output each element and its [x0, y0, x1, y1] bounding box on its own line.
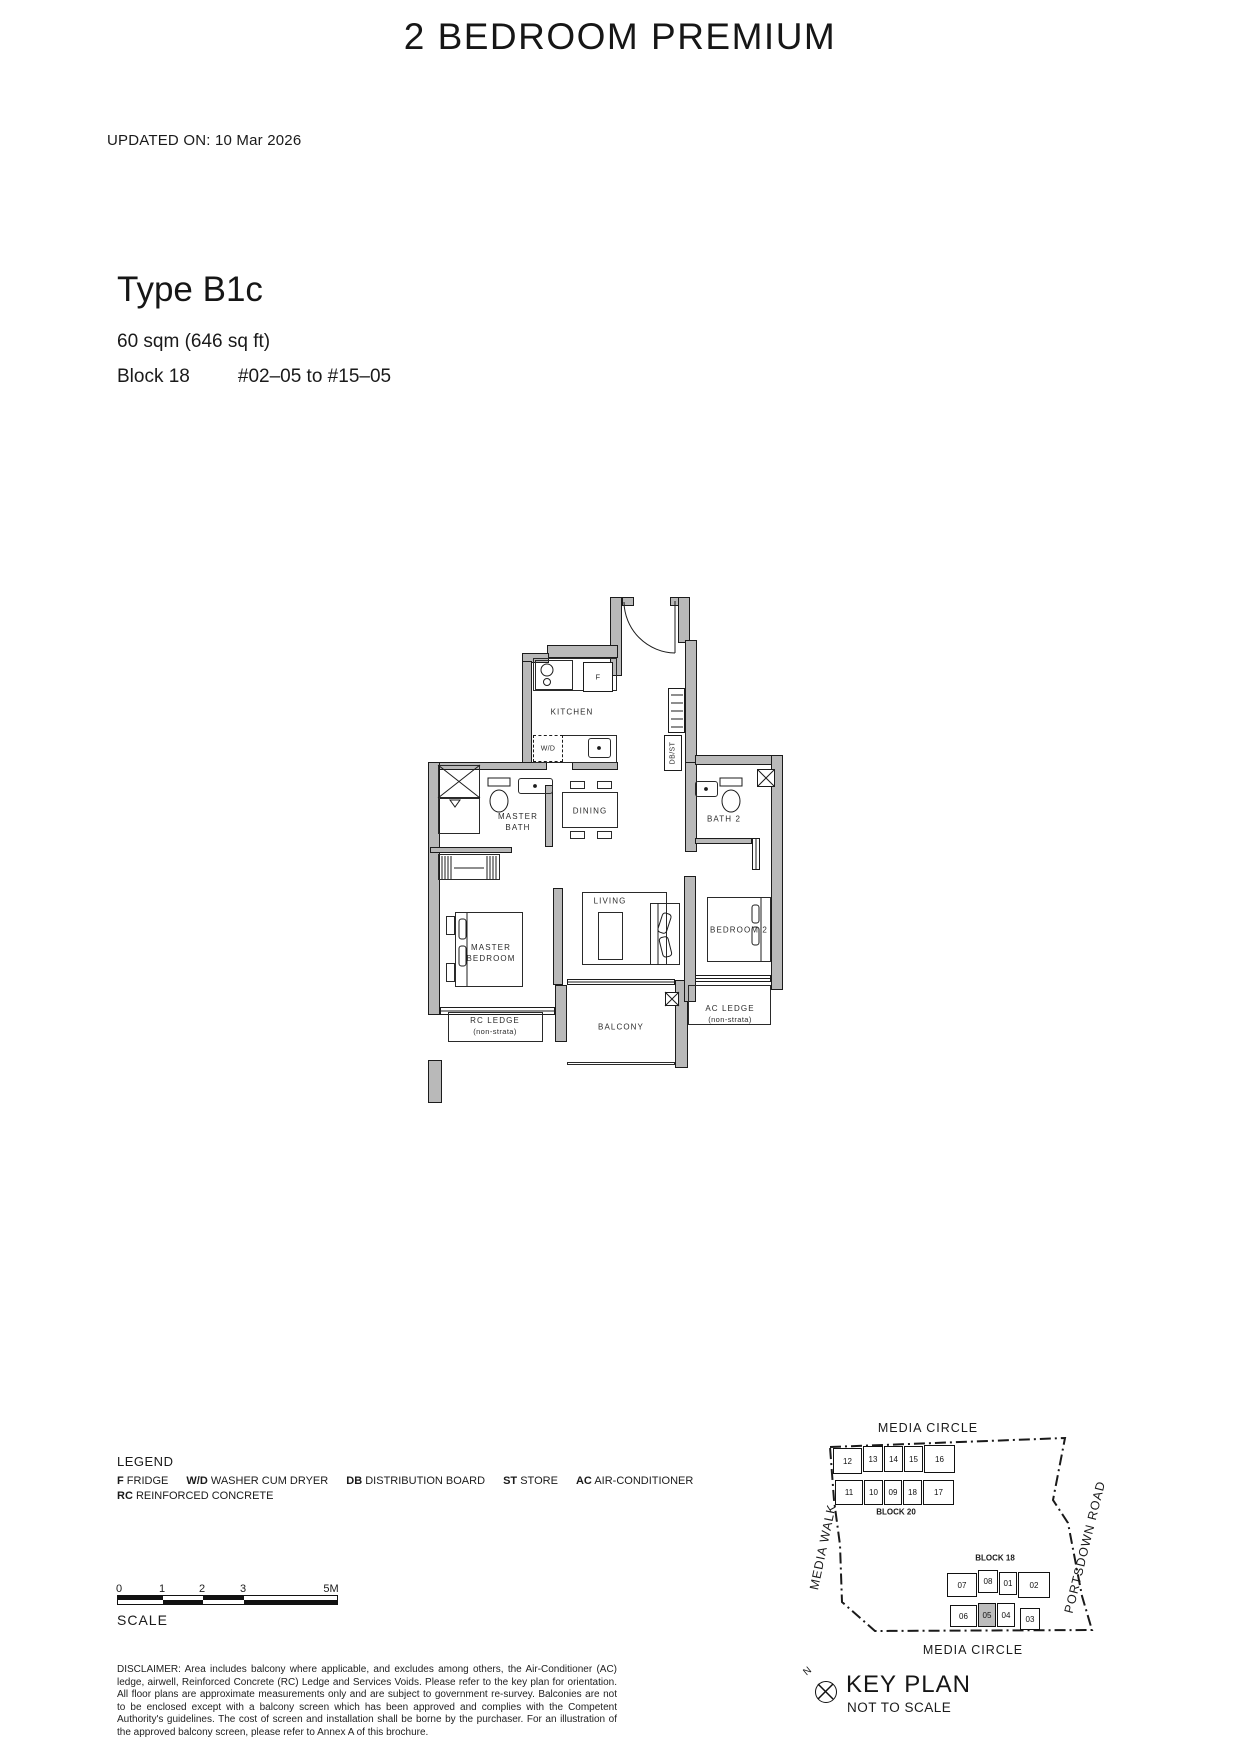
- ac-x: [665, 992, 679, 1006]
- shaft-louvres: [671, 695, 683, 727]
- scale-tick: 2: [199, 1583, 205, 1595]
- unit-box: 10: [864, 1480, 883, 1505]
- sink-tap: [598, 747, 601, 750]
- legend-item: ST STORE: [503, 1475, 558, 1487]
- label-master-bedroom: MASTER BEDROOM: [466, 942, 515, 964]
- unit-range: #02–05 to #15–05: [238, 366, 391, 387]
- label-washer: W/D: [541, 746, 556, 753]
- road-media-circle-top: MEDIA CIRCLE: [878, 1421, 978, 1435]
- unit-area: 60 sqm (646 sq ft): [117, 331, 270, 353]
- label-balcony: BALCONY: [598, 1022, 644, 1033]
- label-kitchen: KITCHEN: [551, 707, 594, 718]
- updated-on: UPDATED ON: 10 Mar 2026: [107, 132, 301, 149]
- unit-box: 12: [833, 1448, 862, 1474]
- shower-x: [438, 765, 480, 798]
- label-dbst: DB/ST: [670, 742, 677, 765]
- label-living: LIVING: [594, 896, 627, 907]
- block18-label: BLOCK 18: [975, 1554, 1015, 1563]
- sofa-cushion: [657, 912, 672, 934]
- unit-box: 17: [923, 1480, 954, 1505]
- unit-box: 01: [999, 1572, 1017, 1595]
- unit-box: 04: [997, 1603, 1015, 1627]
- toilet-bowl: [722, 790, 740, 812]
- floorplan: KITCHEN DINING MASTER BATH BATH 2 LIVING…: [420, 585, 790, 1105]
- legend-heading: LEGEND: [117, 1454, 173, 1469]
- unit-box: 03: [1020, 1608, 1040, 1630]
- hob-burner: [544, 679, 551, 686]
- unit-block: Block 18: [117, 366, 190, 387]
- unit-box: 07: [947, 1573, 977, 1597]
- pillow: [459, 919, 466, 939]
- sink-tap: [705, 788, 708, 791]
- block20-label: BLOCK 20: [876, 1508, 916, 1517]
- keyplan-subtitle: NOT TO SCALE: [847, 1700, 951, 1715]
- unit-type-title: Type B1c: [117, 270, 263, 310]
- unit-box: 08: [978, 1570, 998, 1593]
- scale-tick: 1: [159, 1583, 165, 1595]
- legend-item: F FRIDGE: [117, 1475, 168, 1487]
- unit-box: 18: [903, 1480, 922, 1505]
- legend-row: F FRIDGE W/D WASHER CUM DRYER DB DISTRIB…: [117, 1475, 708, 1487]
- toilet-bowl: [490, 790, 508, 812]
- key-plan: MEDIA CIRCLE MEDIA WALK PORTSDOWN ROAD M…: [790, 1400, 1220, 1740]
- scale-bar: 0 1 2 3 5M: [117, 1583, 338, 1609]
- legend-item: W/D WASHER CUM DRYER: [186, 1475, 328, 1487]
- wardrobe-hatch: [442, 856, 496, 879]
- toilet-tank: [720, 778, 742, 786]
- unit-box: 09: [884, 1480, 902, 1505]
- legend-item: RC REINFORCED CONCRETE: [117, 1490, 273, 1502]
- label-bath2: BATH 2: [707, 814, 741, 825]
- scale-tick: 3: [240, 1583, 246, 1595]
- unit-box: 15: [904, 1446, 923, 1472]
- unit-box: 11: [835, 1480, 863, 1505]
- label-bedroom2: BEDROOM 2: [710, 925, 768, 936]
- label-fridge: F: [596, 673, 601, 682]
- unit-box: 16: [924, 1445, 955, 1473]
- unit-box: 14: [884, 1446, 903, 1472]
- unit-box: 06: [950, 1605, 977, 1627]
- page-title: 2 BEDROOM PREMIUM: [0, 16, 1240, 58]
- unit-block-line: Block 18#02–05 to #15–05: [117, 366, 391, 388]
- label-rc-ledge: RC LEDGE (non-strata): [470, 1015, 520, 1037]
- unit-box: 13: [863, 1446, 883, 1472]
- north-compass-icon: [815, 1681, 837, 1703]
- pillow: [459, 946, 466, 966]
- entry-door-arc: [624, 602, 675, 653]
- sofa-cushion: [659, 936, 673, 958]
- scale-label: SCALE: [117, 1612, 168, 1628]
- label-dining: DINING: [573, 806, 608, 817]
- sink-tap: [534, 785, 537, 788]
- toilet-tank: [488, 778, 510, 786]
- shower-head-icon: [450, 800, 460, 807]
- label-ac-ledge: AC LEDGE (non-strata): [705, 1003, 754, 1025]
- legend-row: RC REINFORCED CONCRETE: [117, 1490, 288, 1502]
- pillow: [752, 905, 759, 923]
- label-master-bath: MASTER BATH: [498, 811, 538, 833]
- scale-tick: 5M: [323, 1583, 338, 1595]
- hob-burner: [541, 664, 553, 676]
- unit-box-highlighted: 05: [978, 1603, 996, 1627]
- road-media-circle-bottom: MEDIA CIRCLE: [923, 1643, 1023, 1657]
- unit-box: 02: [1018, 1572, 1050, 1598]
- legend-item: DB DISTRIBUTION BOARD: [346, 1475, 485, 1487]
- disclaimer-text: DISCLAIMER: Area includes balcony where …: [117, 1664, 617, 1740]
- legend-item: AC AIR-CONDITIONER: [576, 1475, 693, 1487]
- keyplan-title: KEY PLAN: [846, 1671, 971, 1699]
- scale-tick: 0: [116, 1583, 122, 1595]
- ac-x: [758, 770, 774, 786]
- scale-bar-rule: [117, 1595, 338, 1605]
